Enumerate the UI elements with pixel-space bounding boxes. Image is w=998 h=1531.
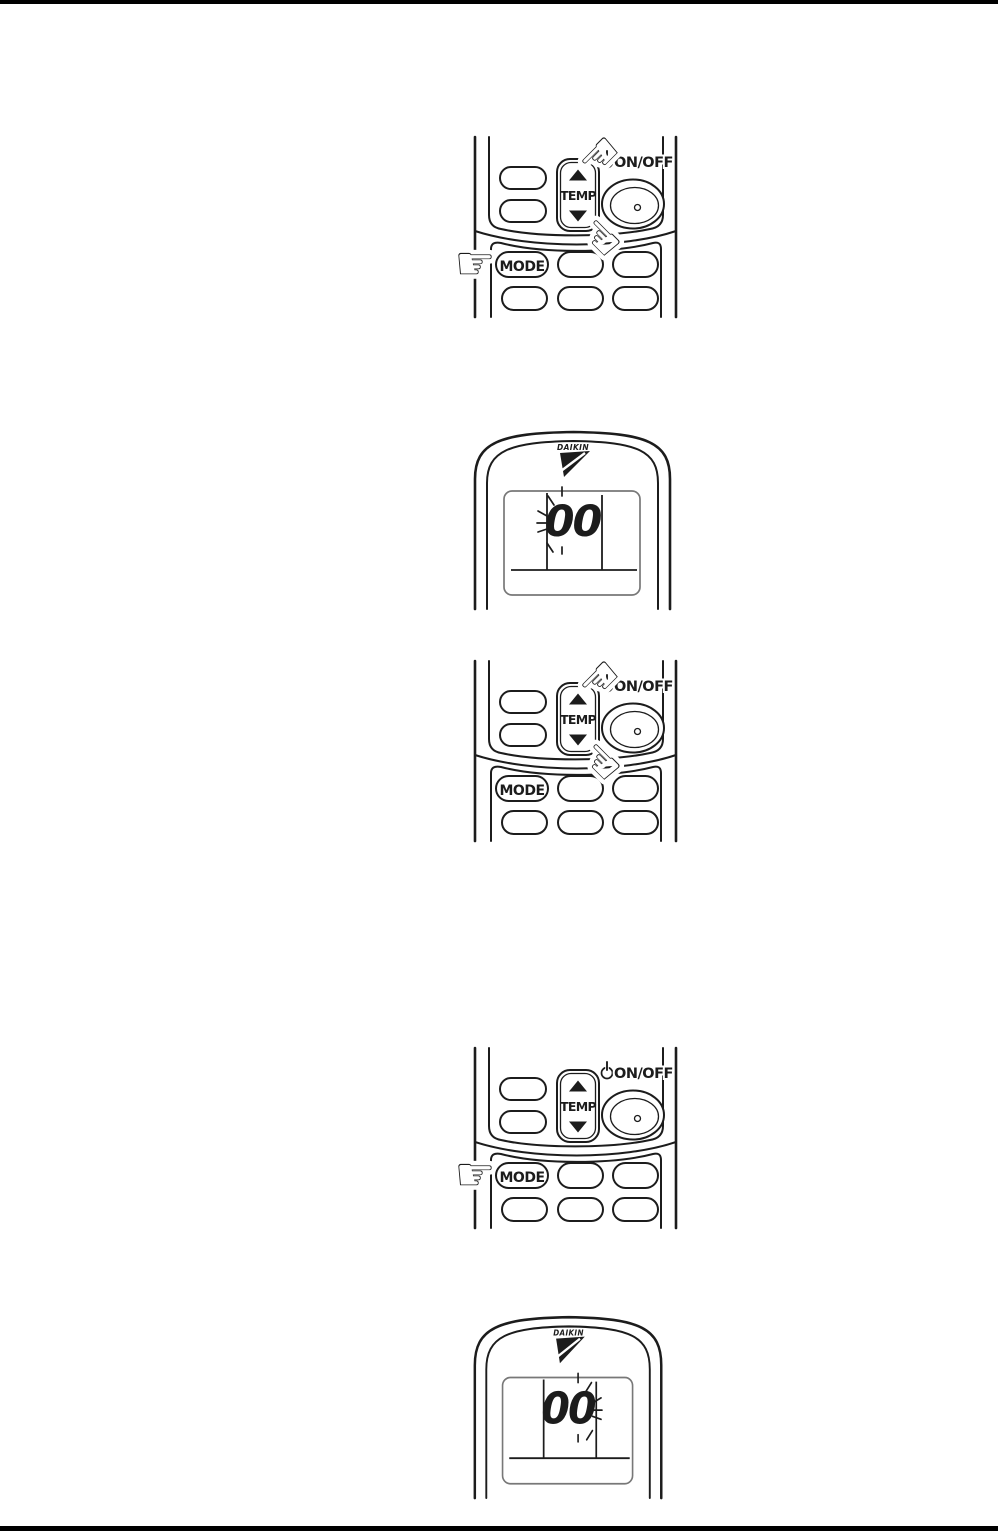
manual-page: TEMP ON/OFF MODE <box>0 0 998 1531</box>
hand-on-mode <box>454 236 495 290</box>
remote-buttons-illustration <box>461 661 683 841</box>
figure-remote-buttons-step-1 <box>461 137 683 317</box>
page-bottom-rule <box>0 1526 998 1531</box>
remote-buttons-illustration <box>461 1048 683 1228</box>
figure-remote-buttons-step-2 <box>461 661 683 841</box>
hand-on-mode <box>454 1147 495 1201</box>
figure-remote-display-blink-right: 00 <box>471 1306 667 1498</box>
lcd-digits: 00 <box>541 1384 596 1435</box>
page-top-rule <box>0 0 998 4</box>
remote-display-illustration: 00 <box>471 421 676 609</box>
remote-buttons-illustration <box>461 137 683 317</box>
figure-remote-display-blink-left: 00 <box>471 421 676 609</box>
lcd-digits: 00 <box>545 497 602 547</box>
figure-remote-buttons-step-3 <box>461 1048 683 1228</box>
remote-display-illustration: 00 <box>471 1306 667 1498</box>
